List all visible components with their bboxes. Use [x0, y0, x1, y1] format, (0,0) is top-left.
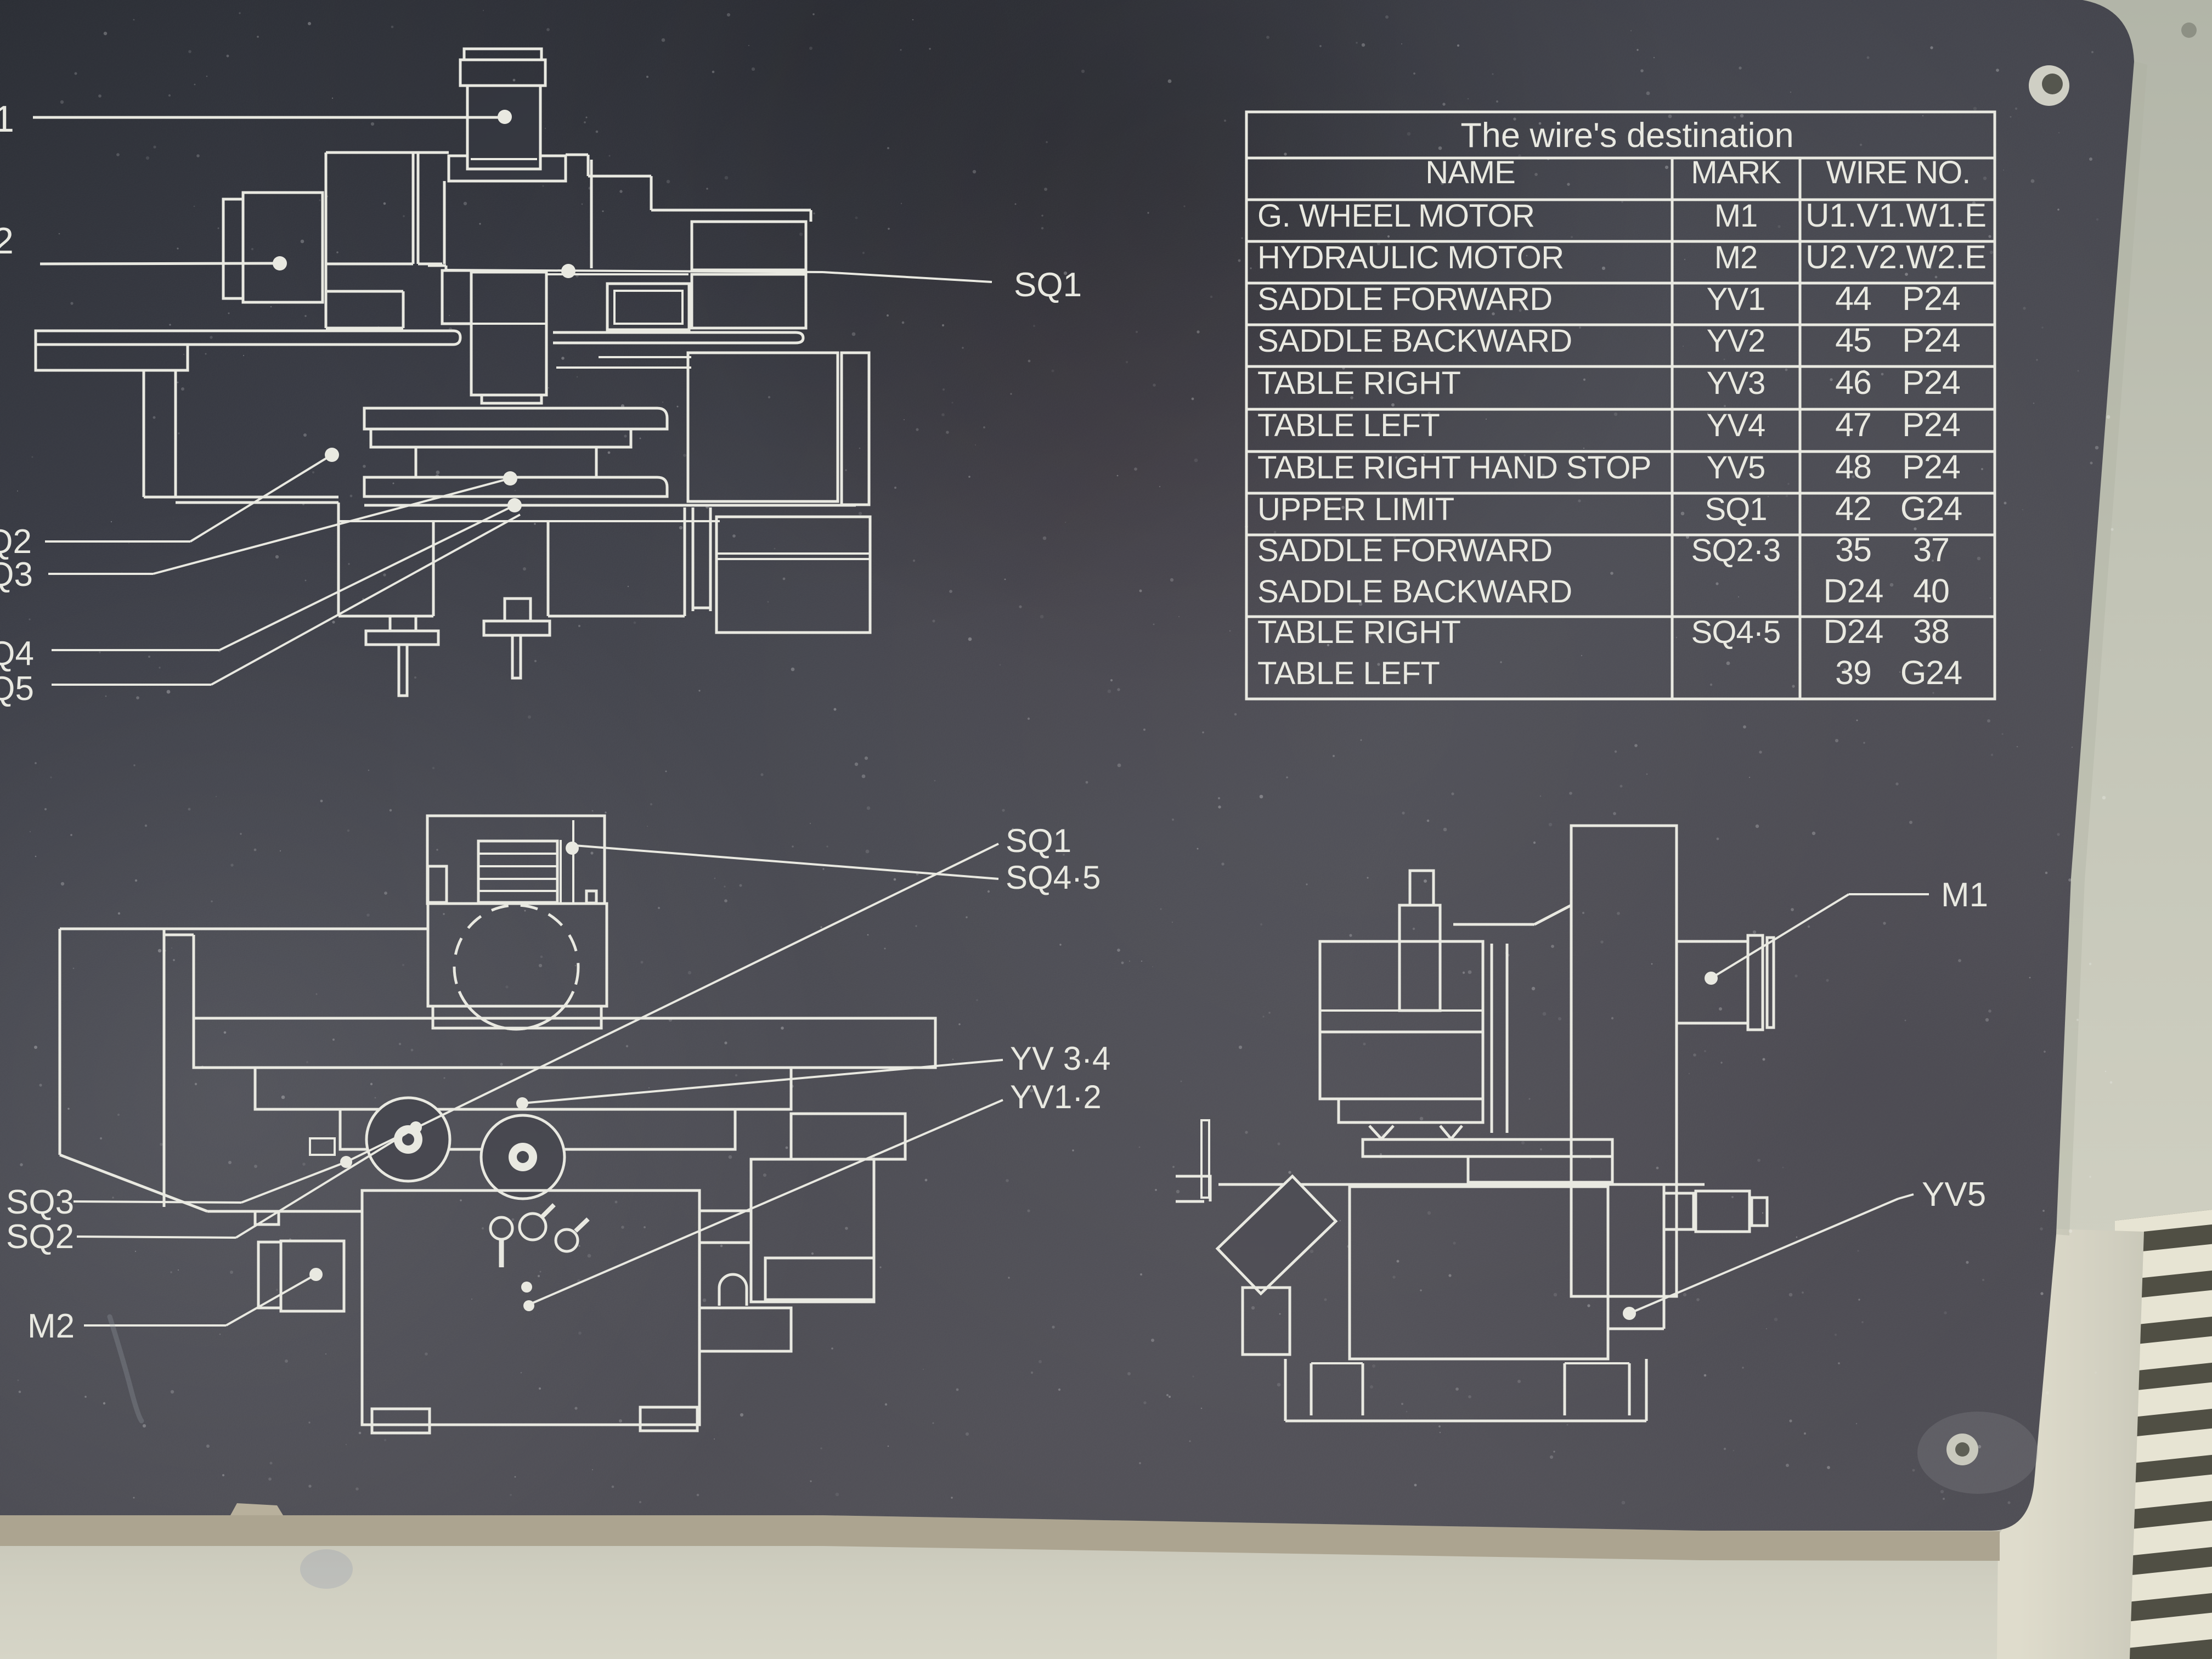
svg-text:42: 42	[1835, 490, 1871, 527]
svg-text:HYDRAULIC MOTOR: HYDRAULIC MOTOR	[1257, 240, 1564, 275]
svg-text:M2: M2	[1714, 240, 1758, 275]
svg-text:TABLE RIGHT HAND STOP: TABLE RIGHT HAND STOP	[1257, 450, 1651, 486]
svg-text:P24: P24	[1902, 406, 1960, 443]
svg-text:48: 48	[1835, 448, 1871, 486]
svg-text:M1: M1	[1941, 876, 1988, 914]
svg-text:UPPER LIMIT: UPPER LIMIT	[1257, 492, 1454, 527]
svg-text:45: 45	[1835, 321, 1871, 359]
svg-text:SADDLE BACKWARD: SADDLE BACKWARD	[1257, 574, 1572, 610]
svg-text:D24: D24	[1824, 613, 1883, 650]
svg-text:YV2: YV2	[1707, 323, 1765, 359]
svg-text:P24: P24	[1902, 280, 1960, 317]
svg-text:SADDLE FORWARD: SADDLE FORWARD	[1257, 533, 1553, 568]
svg-text:40: 40	[1913, 572, 1949, 610]
svg-text:Q2: Q2	[0, 523, 32, 561]
svg-text:YV 3·4: YV 3·4	[1010, 1040, 1110, 1077]
svg-text:SQ3: SQ3	[6, 1183, 74, 1221]
svg-text:SQ1: SQ1	[1705, 492, 1767, 527]
svg-text:WIRE NO.: WIRE NO.	[1826, 155, 1971, 190]
svg-text:P24: P24	[1902, 364, 1960, 401]
svg-text:YV4: YV4	[1707, 408, 1765, 443]
svg-text:U2.V2.W2.E: U2.V2.W2.E	[1805, 239, 1987, 275]
svg-text:YV5: YV5	[1922, 1176, 1986, 1214]
svg-text:G24: G24	[1900, 654, 1962, 691]
svg-text:G. WHEEL MOTOR: G. WHEEL MOTOR	[1257, 198, 1534, 234]
svg-text:YV3: YV3	[1707, 365, 1765, 401]
svg-text:46: 46	[1835, 364, 1871, 401]
svg-text:M2: M2	[27, 1307, 75, 1345]
svg-text:SADDLE BACKWARD: SADDLE BACKWARD	[1257, 323, 1572, 359]
svg-text:YV1·2: YV1·2	[1010, 1079, 1102, 1115]
svg-text:44: 44	[1835, 280, 1871, 317]
svg-text:SQ1: SQ1	[1006, 822, 1071, 859]
svg-text:Q4: Q4	[0, 635, 34, 673]
svg-text:SQ1: SQ1	[1014, 266, 1082, 304]
svg-text:TABLE RIGHT: TABLE RIGHT	[1257, 365, 1461, 401]
svg-text:SQ4·5: SQ4·5	[1006, 859, 1101, 896]
svg-text:MARK: MARK	[1691, 155, 1781, 190]
svg-text:37: 37	[1913, 531, 1949, 568]
svg-text:Q3: Q3	[0, 556, 33, 594]
svg-text:G24: G24	[1900, 490, 1962, 527]
svg-text:SQ2·3: SQ2·3	[1691, 533, 1781, 568]
svg-text:YV1: YV1	[1707, 281, 1765, 317]
svg-text:M1: M1	[1714, 198, 1758, 234]
svg-text:P24: P24	[1902, 448, 1960, 486]
svg-text:D24: D24	[1824, 572, 1883, 610]
svg-text:TABLE LEFT: TABLE LEFT	[1257, 408, 1440, 443]
svg-text:Q5: Q5	[0, 670, 34, 708]
svg-text:P24: P24	[1902, 321, 1960, 359]
svg-text:The wire's destination: The wire's destination	[1460, 116, 1793, 155]
svg-text:35: 35	[1835, 531, 1871, 568]
svg-text:YV5: YV5	[1707, 450, 1765, 486]
svg-text:NAME: NAME	[1425, 155, 1515, 190]
svg-text:SQ4·5: SQ4·5	[1691, 614, 1781, 650]
svg-text:TABLE LEFT: TABLE LEFT	[1257, 656, 1440, 691]
svg-text:2: 2	[0, 220, 14, 262]
svg-text:47: 47	[1835, 406, 1871, 443]
svg-text:39: 39	[1835, 654, 1871, 691]
svg-text:U1.V1.W1.E: U1.V1.W1.E	[1805, 197, 1987, 234]
svg-text:SADDLE FORWARD: SADDLE FORWARD	[1257, 281, 1553, 317]
svg-text:SQ2: SQ2	[6, 1218, 74, 1256]
svg-text:TABLE RIGHT: TABLE RIGHT	[1257, 614, 1461, 650]
svg-text:38: 38	[1913, 613, 1949, 650]
svg-text:1: 1	[0, 98, 14, 140]
